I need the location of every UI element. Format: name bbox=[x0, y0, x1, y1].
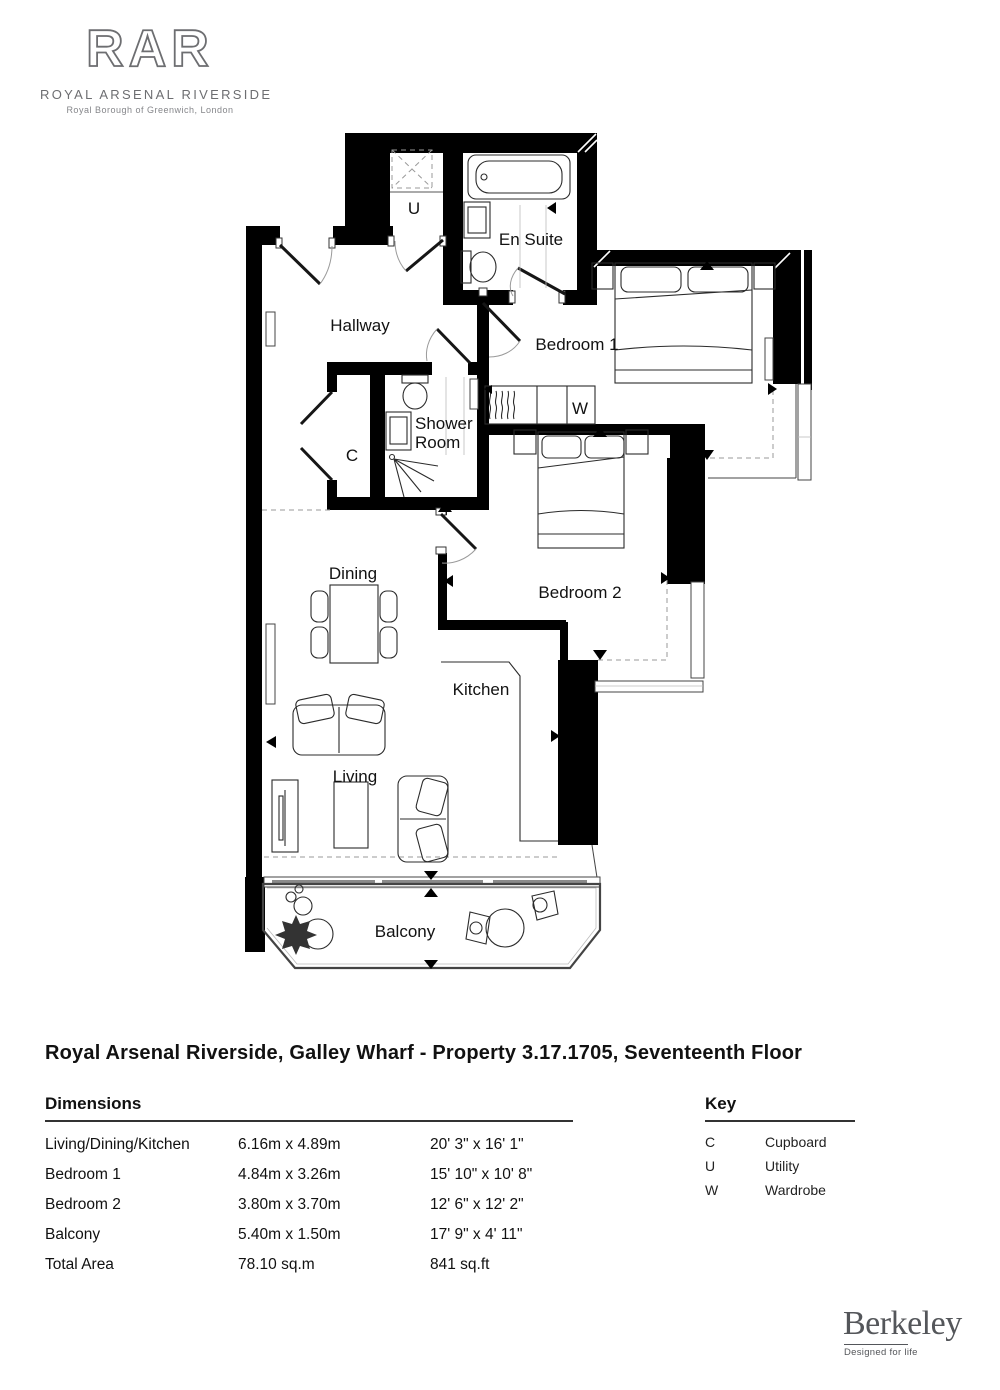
room-label-kitchen: Kitchen bbox=[453, 680, 510, 699]
floorplan-drawing: Hallway U En Suite Bedroom 1 Shower Room… bbox=[0, 0, 1000, 1030]
utility-door bbox=[406, 240, 443, 271]
balcony-plants bbox=[275, 885, 333, 955]
room-label-hallway: Hallway bbox=[330, 316, 390, 335]
dimension-room: Bedroom 1 bbox=[45, 1166, 238, 1184]
dining-table bbox=[311, 585, 397, 663]
key-label: Wardrobe bbox=[765, 1182, 855, 1198]
dimension-room: Bedroom 2 bbox=[45, 1196, 238, 1214]
dimensions-heading: Dimensions bbox=[45, 1094, 573, 1114]
room-label-shower-line1: Shower bbox=[415, 414, 473, 433]
dimension-room: Living/Dining/Kitchen bbox=[45, 1136, 238, 1154]
shower-toilet bbox=[402, 375, 428, 409]
radiator bbox=[266, 624, 275, 704]
bed-double bbox=[592, 263, 775, 383]
brand-name: Berkeley bbox=[843, 1306, 973, 1342]
key-row: C Cupboard bbox=[705, 1130, 855, 1154]
key-label: Cupboard bbox=[765, 1134, 855, 1150]
ensuite-basin bbox=[464, 202, 490, 238]
key-row: W Wardrobe bbox=[705, 1178, 855, 1202]
radiator bbox=[470, 379, 478, 409]
cupboard-bifold-doors bbox=[301, 392, 332, 480]
room-label-cupboard: C bbox=[346, 446, 358, 465]
radiator bbox=[266, 312, 275, 346]
bedroom2-door bbox=[441, 514, 476, 549]
plan-title: Royal Arsenal Riverside, Galley Wharf - … bbox=[45, 1042, 965, 1065]
floorplan-page: RAR ROYAL ARSENAL RIVERSIDE Royal Boroug… bbox=[0, 0, 1000, 1390]
berkeley-logo: Berkeley Designed for life bbox=[843, 1306, 973, 1358]
key-abbr: U bbox=[705, 1158, 765, 1174]
walls bbox=[245, 133, 812, 952]
dimension-metric: 5.40m x 1.50m bbox=[238, 1226, 430, 1244]
shower-room-door bbox=[437, 329, 470, 363]
dimension-imperial: 15' 10" x 10' 8" bbox=[430, 1166, 573, 1184]
dimension-room: Total Area bbox=[45, 1256, 238, 1274]
dimension-imperial: 17' 9" x 4' 11" bbox=[430, 1226, 573, 1244]
balcony-table-set bbox=[466, 891, 558, 947]
entry-door bbox=[280, 245, 320, 284]
room-label-living: Living bbox=[333, 767, 377, 786]
dimension-metric: 4.84m x 3.26m bbox=[238, 1166, 430, 1184]
shower-head bbox=[390, 455, 439, 498]
dimension-imperial: 20' 3" x 16' 1" bbox=[430, 1136, 573, 1154]
dimension-row: Living/Dining/Kitchen 6.16m x 4.89m 20' … bbox=[45, 1130, 573, 1160]
dimension-row: Bedroom 2 3.80m x 3.70m 12' 6" x 12' 2" bbox=[45, 1190, 573, 1220]
radiator bbox=[765, 338, 773, 380]
divider bbox=[45, 1120, 573, 1122]
brand-divider bbox=[844, 1344, 908, 1345]
room-label-shower-line2: Room bbox=[415, 433, 460, 452]
room-label-dining: Dining bbox=[329, 564, 377, 583]
room-label-utility: U bbox=[408, 199, 420, 218]
room-label-ensuite: En Suite bbox=[499, 230, 563, 249]
doors bbox=[280, 240, 565, 563]
key-abbr: C bbox=[705, 1134, 765, 1150]
dimension-row: Bedroom 1 4.84m x 3.26m 15' 10" x 10' 8" bbox=[45, 1160, 573, 1190]
dimensions-table: Dimensions Living/Dining/Kitchen 6.16m x… bbox=[45, 1094, 573, 1280]
dimension-metric: 6.16m x 4.89m bbox=[238, 1136, 430, 1154]
divider bbox=[705, 1120, 855, 1122]
ensuite-door bbox=[518, 268, 565, 294]
room-label-bedroom2: Bedroom 2 bbox=[538, 583, 621, 602]
bed-double bbox=[514, 430, 648, 548]
dimension-imperial: 12' 6" x 12' 2" bbox=[430, 1196, 573, 1214]
dimension-imperial: 841 sq.ft bbox=[430, 1256, 573, 1274]
dimension-row: Total Area 78.10 sq.m 841 sq.ft bbox=[45, 1250, 573, 1280]
room-label-bedroom1: Bedroom 1 bbox=[535, 335, 618, 354]
key-table: Key C Cupboard U Utility W Wardrobe bbox=[705, 1094, 855, 1202]
key-heading: Key bbox=[705, 1094, 855, 1114]
coffee-table bbox=[334, 782, 368, 848]
key-label: Utility bbox=[765, 1158, 855, 1174]
dimension-room: Balcony bbox=[45, 1226, 238, 1244]
dimension-row: Balcony 5.40m x 1.50m 17' 9" x 4' 11" bbox=[45, 1220, 573, 1250]
dimension-metric: 3.80m x 3.70m bbox=[238, 1196, 430, 1214]
room-label-balcony: Balcony bbox=[375, 922, 436, 941]
sofa bbox=[293, 694, 385, 755]
ensuite-toilet bbox=[461, 251, 496, 283]
bathtub bbox=[468, 155, 570, 199]
shower-basin bbox=[386, 412, 411, 450]
dimension-metric: 78.10 sq.m bbox=[238, 1256, 430, 1274]
wall-corner-hatches bbox=[578, 134, 790, 268]
sofa bbox=[398, 776, 449, 863]
tv-unit bbox=[272, 780, 298, 852]
key-abbr: W bbox=[705, 1182, 765, 1198]
brand-tagline: Designed for life bbox=[844, 1347, 973, 1358]
room-label-wardrobe: W bbox=[572, 399, 588, 418]
key-row: U Utility bbox=[705, 1154, 855, 1178]
